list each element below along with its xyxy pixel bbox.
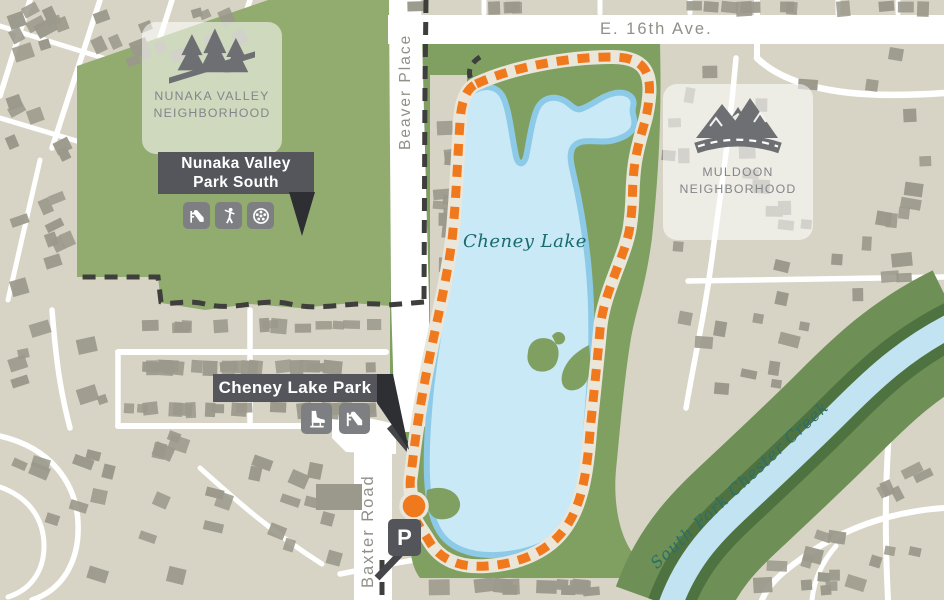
street-label-beaver-place: Beaver Place [397, 34, 415, 150]
playground-slide-icon [339, 403, 370, 434]
park-amenities [183, 202, 274, 229]
park-banner-text: Cheney Lake Park [213, 374, 377, 402]
large-building [316, 484, 362, 510]
nunaka-valley-park-south-label: Nunaka Valley Park South [158, 152, 358, 252]
lake-name-label: Cheney Lake [463, 231, 587, 252]
cheney-lake-trail-map: E. 16th Ave. Beaver Place Baxter Road Ch… [0, 0, 944, 600]
neighborhood-badge-label: MULDOON NEIGHBORHOOD [680, 164, 797, 197]
cheney-lake-park-label: Cheney Lake Park [213, 374, 423, 464]
pine-trees-trail-icon [169, 28, 255, 86]
playground-slide-icon [183, 202, 210, 229]
sports-ball-icon [247, 202, 274, 229]
parking-marker: P [388, 519, 421, 556]
park-banner-text: Nunaka Valley Park South [158, 152, 314, 194]
street-label-baxter-road: Baxter Road [359, 474, 378, 588]
nunaka-valley-neighborhood-badge: NUNAKA VALLEY NEIGHBORHOOD [142, 22, 282, 154]
mountains-road-icon [690, 92, 786, 162]
muldoon-neighborhood-badge: MULDOON NEIGHBORHOOD [663, 84, 813, 240]
street-label-e-16th-ave: E. 16th Ave. [600, 20, 713, 39]
trailhead-dot [401, 493, 427, 519]
golf-icon [215, 202, 242, 229]
neighborhood-badge-label: NUNAKA VALLEY NEIGHBORHOOD [154, 88, 271, 121]
park-amenities [301, 403, 370, 434]
ice-skating-icon [301, 403, 332, 434]
parking-letter: P [397, 525, 412, 551]
